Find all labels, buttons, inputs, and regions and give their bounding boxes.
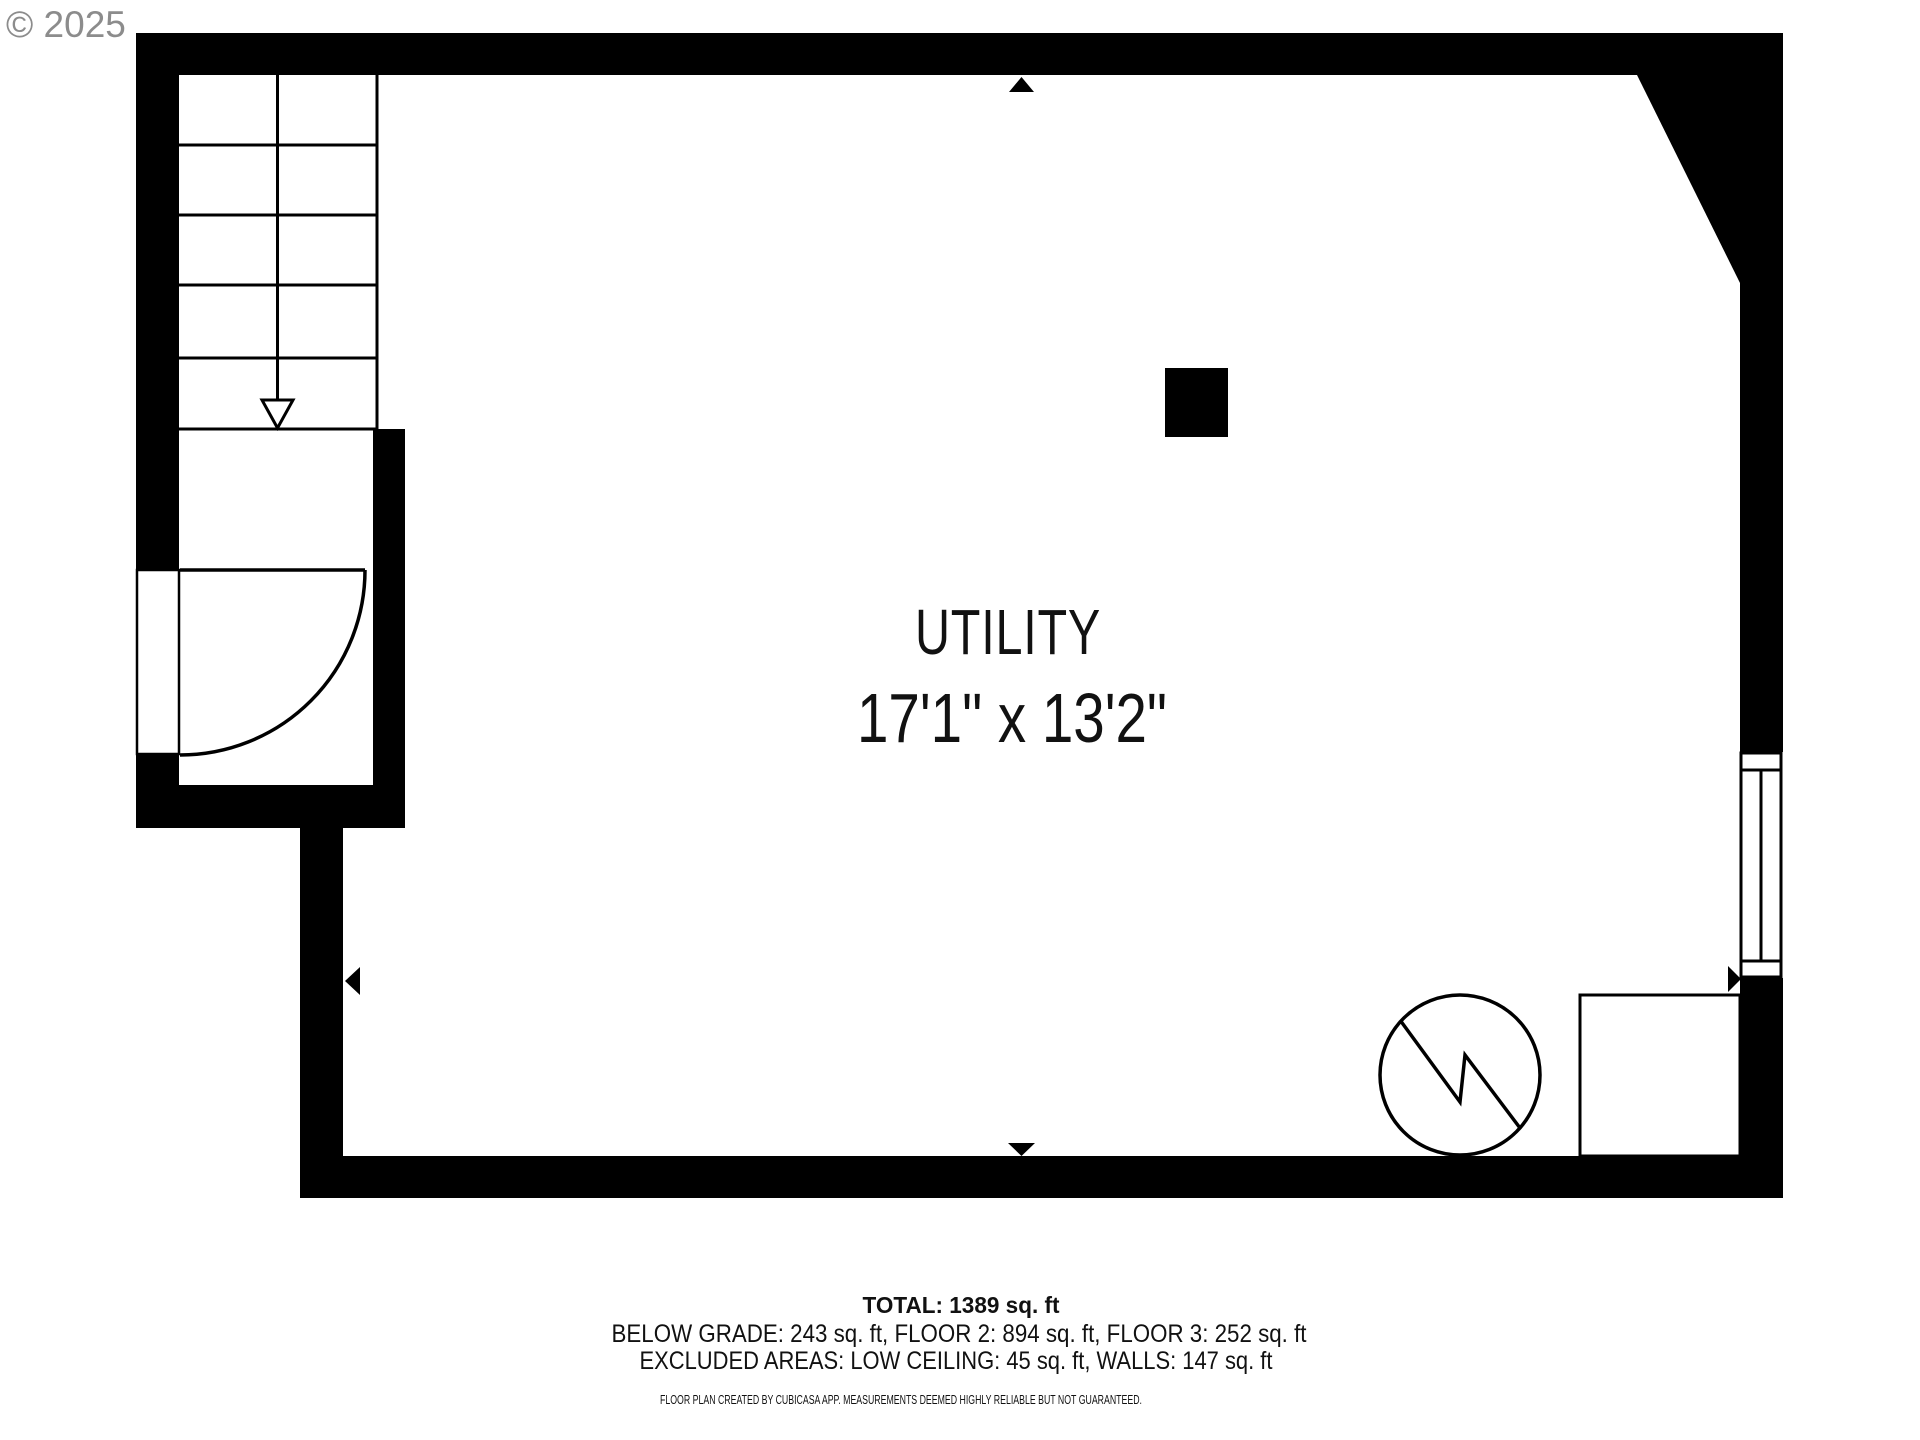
wall-closet-bottom (136, 785, 405, 828)
wall-lower-left (300, 828, 343, 1198)
wall-right-upper (1740, 283, 1783, 752)
water-heater-circle (1380, 995, 1540, 1155)
disclaimer-text: FLOOR PLAN CREATED BY CUBICASA APP. MEAS… (660, 1392, 1142, 1407)
staircase (179, 75, 377, 429)
door-opening-gap (135, 569, 180, 755)
copyright-watermark: © 2025 (6, 4, 126, 45)
stairs-down-arrow-icon (262, 400, 293, 428)
furnace-box-icon (1580, 995, 1740, 1156)
excluded-areas-text: EXCLUDED AREAS: LOW CEILING: 45 sq. ft, … (640, 1347, 1273, 1375)
window (1739, 752, 1784, 978)
room-dimensions-label: 17'1" x 13'2" (857, 679, 1167, 757)
door-swing-arc-icon (180, 570, 365, 755)
total-area-text: TOTAL: 1389 sq. ft (863, 1292, 1060, 1318)
room-name-label: UTILITY (915, 596, 1101, 668)
pillar-icon (1165, 368, 1228, 437)
area-summary: TOTAL: 1389 sq. ft BELOW GRADE: 243 sq. … (612, 1292, 1307, 1407)
wall-left-upper (136, 33, 179, 569)
dimension-marker-bottom-icon (1008, 1143, 1035, 1156)
dimension-marker-left-icon (345, 967, 360, 995)
wall-bottom (300, 1156, 1783, 1198)
dimension-marker-top-icon (1009, 77, 1034, 92)
wall-closet-right (373, 429, 405, 789)
entry-door (135, 569, 365, 755)
floor-plan-canvas: © 2025 UTILITY 17'1" x 13'2" TOTAL: 1389… (0, 0, 1920, 1440)
floor-breakdown-text: BELOW GRADE: 243 sq. ft, FLOOR 2: 894 sq… (612, 1320, 1307, 1348)
wall-top-right-diagonal (1637, 75, 1783, 283)
wall-top (136, 33, 1783, 75)
water-heater-icon (1380, 995, 1540, 1155)
